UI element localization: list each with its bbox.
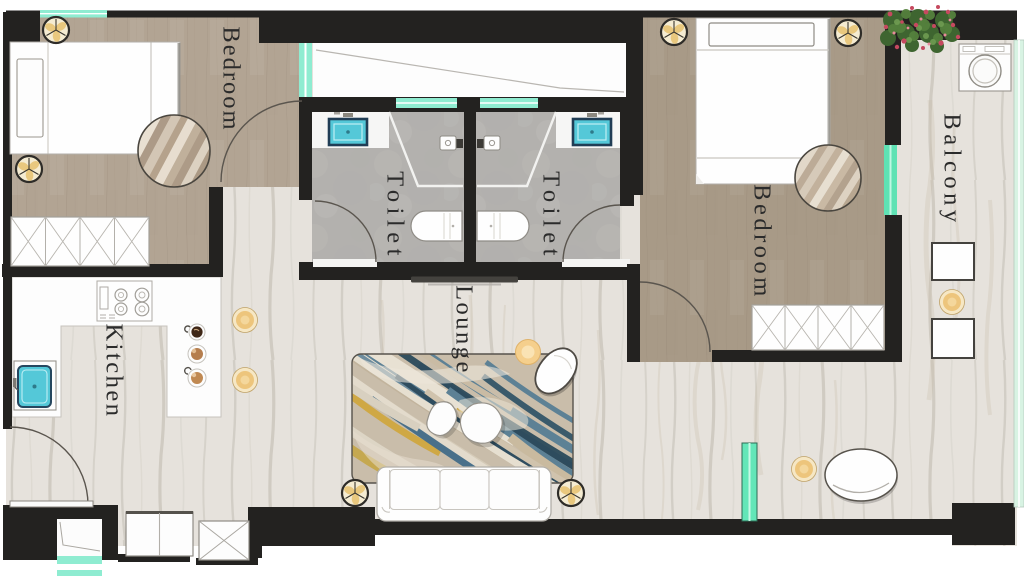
svg-text:Kitchen: Kitchen — [100, 323, 127, 418]
svg-text:Balcony: Balcony — [938, 113, 965, 226]
svg-text:Toilet: Toilet — [381, 171, 408, 261]
svg-text:Lounge: Lounge — [450, 285, 477, 375]
svg-text:Bedroom: Bedroom — [748, 184, 775, 300]
svg-text:Toilet: Toilet — [537, 171, 564, 261]
svg-text:Bedroom: Bedroom — [217, 26, 244, 131]
